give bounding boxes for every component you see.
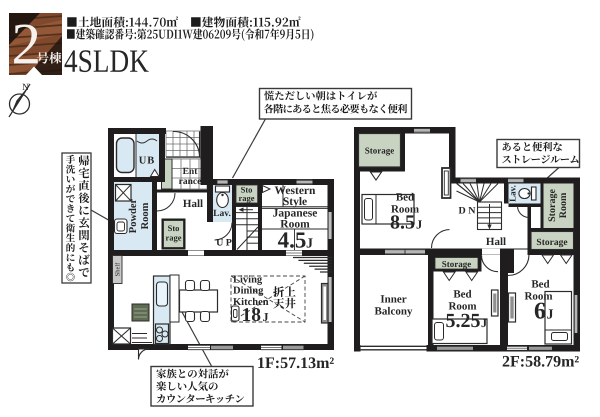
svg-text:U P: U P bbox=[216, 238, 232, 249]
svg-text:Hall: Hall bbox=[183, 198, 203, 210]
svg-text:Shelf: Shelf bbox=[115, 262, 122, 277]
svg-text:Hall: Hall bbox=[486, 236, 506, 248]
svg-text:J: J bbox=[263, 310, 269, 324]
svg-text:2: 2 bbox=[12, 11, 42, 77]
svg-text:J: J bbox=[481, 316, 487, 330]
svg-text:Bed: Bed bbox=[531, 279, 549, 291]
svg-text:Balcony: Balcony bbox=[375, 306, 413, 318]
svg-text:Bed: Bed bbox=[396, 192, 414, 204]
svg-text:Bed: Bed bbox=[453, 289, 471, 301]
svg-text:Dining: Dining bbox=[233, 286, 264, 297]
svg-text:Lav.: Lav. bbox=[508, 185, 518, 202]
svg-text:4.5: 4.5 bbox=[278, 228, 307, 253]
svg-text:Lav.: Lav. bbox=[213, 209, 231, 219]
svg-text:1F:57.13m²: 1F:57.13m² bbox=[257, 355, 334, 372]
svg-text:J: J bbox=[547, 308, 554, 323]
svg-text:2F:58.79m²: 2F:58.79m² bbox=[502, 354, 579, 371]
svg-text:18: 18 bbox=[242, 305, 262, 326]
svg-text:N: N bbox=[22, 83, 29, 93]
svg-text:Style: Style bbox=[283, 196, 307, 208]
svg-text:Room: Room bbox=[558, 192, 569, 218]
svg-text:rage: rage bbox=[165, 233, 181, 243]
svg-text:UB: UB bbox=[139, 156, 156, 167]
svg-text:Living: Living bbox=[233, 275, 263, 286]
svg-text:Ent: Ent bbox=[183, 167, 199, 177]
svg-text:Powder: Powder bbox=[128, 198, 139, 233]
svg-text:Storage: Storage bbox=[365, 146, 395, 156]
svg-text:6: 6 bbox=[534, 299, 546, 325]
svg-text:J: J bbox=[306, 237, 313, 252]
svg-text:J: J bbox=[416, 218, 422, 232]
svg-text:Storage: Storage bbox=[536, 238, 567, 248]
svg-text:rance: rance bbox=[179, 177, 202, 187]
svg-text:Room: Room bbox=[140, 202, 151, 229]
svg-text:Storage: Storage bbox=[547, 189, 558, 222]
svg-text:Storage: Storage bbox=[442, 259, 472, 269]
svg-text:8.5: 8.5 bbox=[390, 212, 415, 234]
svg-text:rage: rage bbox=[238, 193, 254, 203]
svg-text:Inner: Inner bbox=[380, 294, 406, 306]
svg-text:D N: D N bbox=[459, 206, 477, 217]
svg-text:Sto: Sto bbox=[168, 223, 180, 233]
svg-text:5.25: 5.25 bbox=[446, 310, 481, 332]
